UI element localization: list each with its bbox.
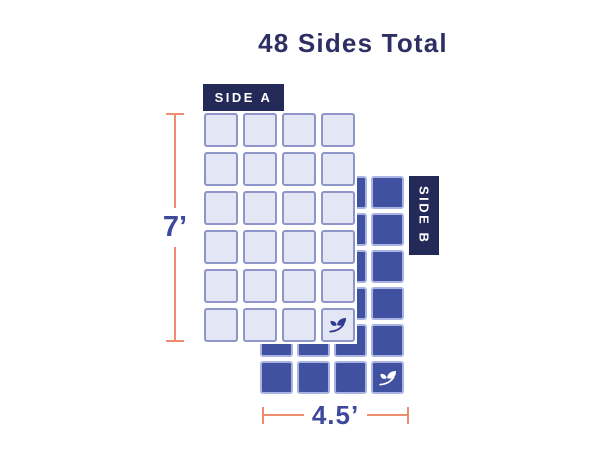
side-a-panel [243,269,277,303]
diagram-canvas: 48 Sides Total 7’ SIDE A SIDE B 4.5’ [0,0,600,464]
side-a-grid [204,113,355,342]
diagram-title: 48 Sides Total [160,28,546,59]
side-a-panel [321,152,355,186]
side-a-panel [204,113,238,147]
side-a-panel [321,113,355,147]
side-a-panel [243,191,277,225]
dimension-line-left [264,414,304,416]
side-b-label: SIDE B [409,176,439,255]
side-b-panel [334,361,367,394]
width-dimension-label: 4.5’ [312,402,359,428]
leaf-icon [328,315,348,335]
side-a-panel [204,269,238,303]
side-a-panel [282,191,316,225]
dimension-tick-right [407,407,409,424]
side-a-panel [321,308,355,342]
side-a-panel [282,152,316,186]
side-a-panel [282,113,316,147]
side-a-panel [204,152,238,186]
side-b-panel [371,361,404,394]
side-b-panel [297,361,330,394]
side-a-panel [204,230,238,264]
dimension-line-right [367,414,407,416]
height-dimension-label: 7’ [163,213,187,242]
side-a-panel [204,191,238,225]
dimension-line-upper [174,115,176,208]
dimension-line-lower [174,247,176,340]
side-a-panel [282,308,316,342]
side-b-panel [371,213,404,246]
side-a-panel [282,230,316,264]
side-a-panel [243,308,277,342]
side-a-panel [243,152,277,186]
width-dimension: 4.5’ [262,398,409,432]
leaf-icon [378,368,398,388]
height-dimension: 7’ [164,113,186,342]
side-b-panel [371,287,404,320]
side-b-panel [371,324,404,357]
side-a-panel [321,230,355,264]
side-b-panel [260,361,293,394]
side-b-panel [371,176,404,209]
side-b-panel [371,250,404,283]
side-a-panel [282,269,316,303]
side-a-panel [321,269,355,303]
side-a-panel [243,230,277,264]
dimension-tick-bottom [166,340,184,342]
side-a-label: SIDE A [203,84,284,111]
side-a-panel [321,191,355,225]
side-a-panel [243,113,277,147]
side-a-panel [204,308,238,342]
